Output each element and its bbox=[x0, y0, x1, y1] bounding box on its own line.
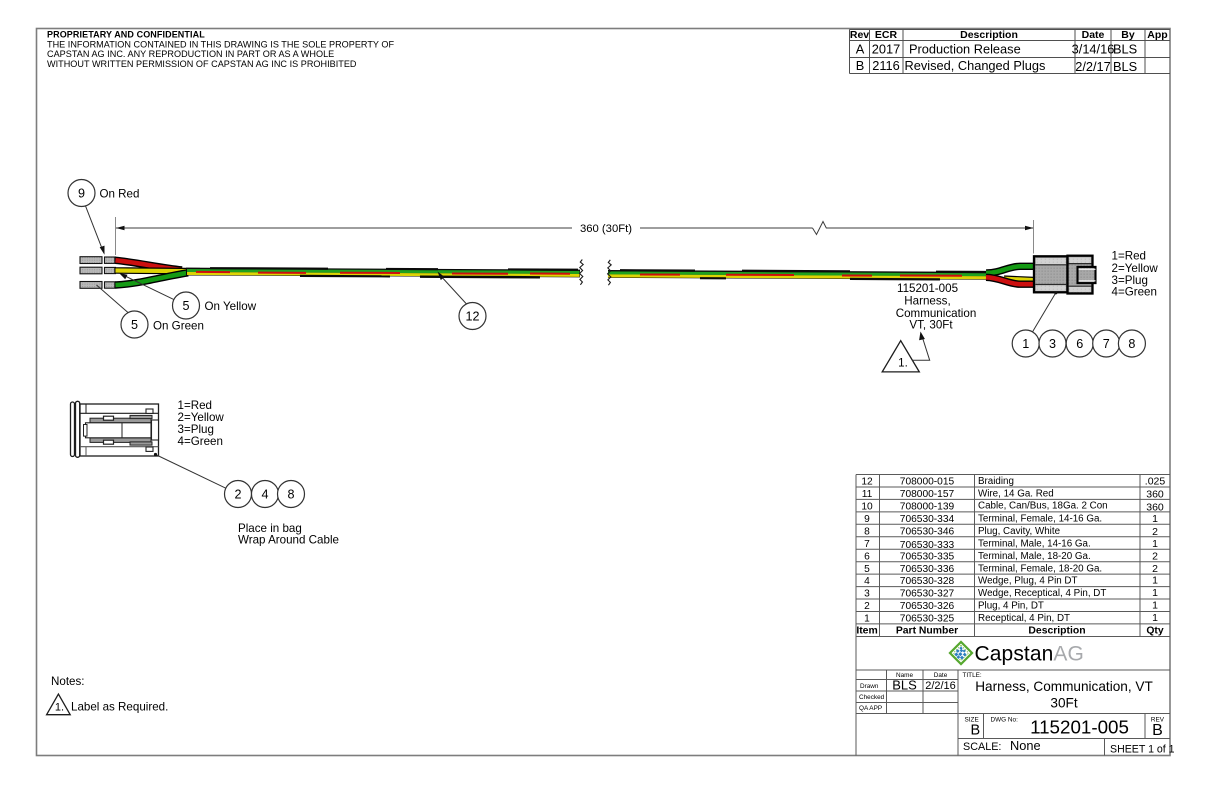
svg-text:9: 9 bbox=[78, 187, 85, 201]
svg-text:2=Yellow: 2=Yellow bbox=[1112, 262, 1159, 275]
svg-text:None: None bbox=[1010, 738, 1041, 753]
svg-text:2/2/17: 2/2/17 bbox=[1075, 59, 1111, 74]
svg-text:708000-157: 708000-157 bbox=[900, 489, 955, 500]
svg-text:3: 3 bbox=[864, 589, 870, 600]
svg-text:706530-335: 706530-335 bbox=[900, 551, 955, 562]
svg-text:706530-334: 706530-334 bbox=[900, 514, 955, 525]
svg-text:.025: .025 bbox=[1145, 476, 1166, 488]
svg-text:BLS: BLS bbox=[892, 678, 917, 693]
svg-text:TITLE:: TITLE: bbox=[963, 672, 982, 679]
svg-text:Label as Required.: Label as Required. bbox=[71, 701, 168, 714]
svg-text:Description: Description bbox=[1028, 626, 1085, 637]
svg-text:360: 360 bbox=[1146, 489, 1164, 501]
svg-text:706530-328: 706530-328 bbox=[900, 576, 955, 587]
svg-text:Wedge, Plug, 4 Pin DT: Wedge, Plug, 4 Pin DT bbox=[978, 575, 1077, 586]
svg-text:A: A bbox=[856, 41, 865, 56]
svg-text:360 (30Ft): 360 (30Ft) bbox=[580, 223, 632, 235]
svg-text:1: 1 bbox=[1152, 600, 1158, 612]
svg-text:360: 360 bbox=[1146, 501, 1164, 513]
svg-text:Receptical, 4 Pin, DT: Receptical, 4 Pin, DT bbox=[978, 613, 1070, 624]
svg-text:30Ft: 30Ft bbox=[1050, 696, 1077, 711]
svg-text:9: 9 bbox=[864, 514, 870, 525]
svg-text:Qty: Qty bbox=[1146, 626, 1164, 637]
svg-text:5: 5 bbox=[182, 299, 189, 313]
svg-text:BLS: BLS bbox=[1113, 59, 1137, 74]
svg-text:QA APP: QA APP bbox=[859, 705, 882, 712]
svg-text:App: App bbox=[1147, 29, 1167, 41]
svg-text:8: 8 bbox=[287, 488, 294, 502]
svg-text:2017: 2017 bbox=[872, 41, 900, 56]
svg-text:Harness, Communication, VT: Harness, Communication, VT bbox=[975, 679, 1153, 694]
svg-text:Harness,: Harness, bbox=[904, 295, 950, 308]
svg-text:3: 3 bbox=[1049, 337, 1056, 351]
svg-text:115201-005: 115201-005 bbox=[1030, 717, 1129, 738]
svg-text:1=Red: 1=Red bbox=[1112, 250, 1147, 263]
svg-text:5: 5 bbox=[864, 564, 870, 575]
svg-text:B: B bbox=[1152, 722, 1163, 739]
svg-text:708000-015: 708000-015 bbox=[900, 477, 955, 488]
svg-text:CapstanAG: CapstanAG bbox=[975, 643, 1084, 666]
svg-text:On Yellow: On Yellow bbox=[205, 300, 257, 313]
svg-text:706530-333: 706530-333 bbox=[900, 540, 955, 551]
svg-text:Terminal, Female, 14-16 Ga.: Terminal, Female, 14-16 Ga. bbox=[978, 514, 1102, 525]
svg-text:2: 2 bbox=[1152, 563, 1158, 575]
svg-text:8: 8 bbox=[1128, 337, 1135, 351]
svg-text:Date: Date bbox=[1082, 29, 1105, 41]
svg-text:1.: 1. bbox=[898, 357, 908, 370]
svg-text:2/2/16: 2/2/16 bbox=[925, 680, 956, 692]
svg-text:8: 8 bbox=[864, 526, 870, 537]
svg-text:7: 7 bbox=[1103, 337, 1110, 351]
svg-text:PROPRIETARY AND CONFIDENTIAL: PROPRIETARY AND CONFIDENTIAL bbox=[47, 30, 205, 40]
svg-text:Date: Date bbox=[934, 672, 948, 679]
svg-text:Wedge, Receptical, 4 Pin, DT: Wedge, Receptical, 4 Pin, DT bbox=[978, 588, 1106, 599]
svg-text:Drawn: Drawn bbox=[860, 683, 879, 690]
svg-text:On Green: On Green bbox=[153, 320, 204, 333]
svg-text:706530-336: 706530-336 bbox=[900, 564, 955, 575]
svg-text:Notes:: Notes: bbox=[51, 675, 85, 688]
svg-text:706530-325: 706530-325 bbox=[900, 614, 955, 625]
svg-text:Revised, Changed Plugs: Revised, Changed Plugs bbox=[905, 58, 1046, 73]
svg-text:4: 4 bbox=[864, 576, 870, 587]
svg-text:THE INFORMATION CONTAINED IN T: THE INFORMATION CONTAINED IN THIS DRAWIN… bbox=[47, 39, 394, 49]
svg-text:2: 2 bbox=[864, 601, 870, 612]
svg-text:6: 6 bbox=[864, 551, 870, 562]
svg-text:Description: Description bbox=[960, 29, 1018, 41]
svg-text:2: 2 bbox=[1152, 526, 1158, 538]
svg-text:B: B bbox=[856, 58, 865, 73]
svg-text:Terminal, Male, 18-20 Ga.: Terminal, Male, 18-20 Ga. bbox=[978, 551, 1091, 562]
svg-text:1: 1 bbox=[864, 614, 870, 625]
svg-text:BLS: BLS bbox=[1113, 41, 1137, 56]
svg-text:1: 1 bbox=[1022, 337, 1029, 351]
svg-text:Plug, 4 Pin, DT: Plug, 4 Pin, DT bbox=[978, 601, 1044, 612]
svg-text:115201-005: 115201-005 bbox=[897, 282, 958, 295]
svg-text:1: 1 bbox=[1152, 587, 1158, 599]
svg-text:1: 1 bbox=[1152, 538, 1158, 550]
svg-text:Terminal, Female, 18-20 Ga.: Terminal, Female, 18-20 Ga. bbox=[978, 563, 1102, 574]
svg-text:1: 1 bbox=[1152, 612, 1158, 624]
svg-text:1.: 1. bbox=[55, 701, 64, 713]
svg-text:12: 12 bbox=[465, 310, 479, 324]
svg-text:Part Number: Part Number bbox=[896, 626, 958, 637]
svg-text:1: 1 bbox=[1152, 574, 1158, 586]
svg-text:11: 11 bbox=[862, 489, 873, 500]
svg-text:Braiding: Braiding bbox=[978, 476, 1014, 487]
svg-text:1: 1 bbox=[1152, 513, 1158, 525]
svg-text:SHEET 1 of 1: SHEET 1 of 1 bbox=[1110, 744, 1175, 756]
svg-text:7: 7 bbox=[864, 539, 870, 550]
svg-text:2: 2 bbox=[1152, 550, 1158, 562]
svg-text:Cable, Can/Bus, 18Ga. 2 Con: Cable, Can/Bus, 18Ga. 2 Con bbox=[978, 501, 1108, 512]
svg-text:Rev: Rev bbox=[850, 29, 869, 41]
svg-text:12: 12 bbox=[861, 477, 873, 488]
svg-text:VT, 30Ft: VT, 30Ft bbox=[909, 319, 953, 332]
svg-text:4=Green: 4=Green bbox=[178, 435, 223, 448]
svg-text:706530-326: 706530-326 bbox=[900, 601, 955, 612]
svg-text:706530-327: 706530-327 bbox=[900, 589, 955, 600]
svg-text:Terminal, Male, 14-16 Ga.: Terminal, Male, 14-16 Ga. bbox=[978, 539, 1091, 550]
svg-text:2116: 2116 bbox=[872, 58, 900, 73]
svg-text:4: 4 bbox=[261, 488, 268, 502]
svg-text:CAPSTAN AG INC. ANY REPRODUCTI: CAPSTAN AG INC. ANY REPRODUCTION IN PART… bbox=[47, 49, 334, 59]
svg-text:5: 5 bbox=[131, 318, 138, 332]
svg-text:4=Green: 4=Green bbox=[1112, 285, 1157, 298]
svg-text:6: 6 bbox=[1076, 337, 1083, 351]
svg-text:708000-139: 708000-139 bbox=[900, 502, 955, 513]
svg-text:WITHOUT WRITTEN PERMISSION OF: WITHOUT WRITTEN PERMISSION OF CAPSTAN AG… bbox=[47, 59, 357, 69]
svg-text:3/14/16: 3/14/16 bbox=[1072, 41, 1115, 56]
svg-text:B: B bbox=[971, 723, 981, 739]
svg-text:Production Release: Production Release bbox=[909, 41, 1021, 56]
svg-text:By: By bbox=[1121, 29, 1135, 41]
svg-text:Plug, Cavity, White: Plug, Cavity, White bbox=[978, 526, 1061, 537]
svg-text:ECR: ECR bbox=[875, 29, 898, 41]
svg-text:Wrap Around Cable: Wrap Around Cable bbox=[238, 534, 339, 547]
svg-text:Checked: Checked bbox=[859, 694, 885, 701]
svg-text:DWG No:: DWG No: bbox=[991, 717, 1019, 724]
svg-text:Item: Item bbox=[856, 626, 877, 637]
svg-text:2: 2 bbox=[234, 488, 241, 502]
svg-text:10: 10 bbox=[861, 502, 873, 513]
svg-text:SCALE:: SCALE: bbox=[963, 741, 1001, 753]
svg-text:On Red: On Red bbox=[100, 188, 140, 201]
svg-text:Wire, 14 Ga. Red: Wire, 14 Ga. Red bbox=[978, 489, 1054, 500]
svg-text:706530-346: 706530-346 bbox=[900, 526, 955, 537]
